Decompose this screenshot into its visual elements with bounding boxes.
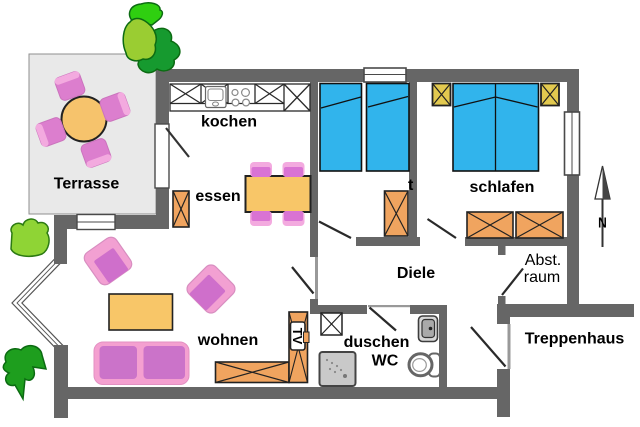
svg-text:Diele: Diele (397, 265, 435, 282)
svg-text:essen: essen (195, 188, 240, 205)
svg-text:schlafen: schlafen (470, 179, 535, 196)
svg-text:wohnen: wohnen (197, 332, 258, 349)
svg-text:kochen: kochen (201, 114, 257, 131)
svg-text:N: N (598, 214, 607, 231)
svg-text:Treppenhaus: Treppenhaus (525, 331, 625, 348)
svg-text:Terrasse: Terrasse (54, 176, 120, 193)
svg-text:duschen: duschen (344, 334, 410, 351)
svg-text:Abst.: Abst. (525, 252, 561, 269)
svg-text:t: t (408, 177, 414, 194)
svg-text:TV: TV (290, 328, 305, 345)
svg-text:WC: WC (372, 353, 399, 370)
svg-text:raum: raum (524, 269, 560, 286)
